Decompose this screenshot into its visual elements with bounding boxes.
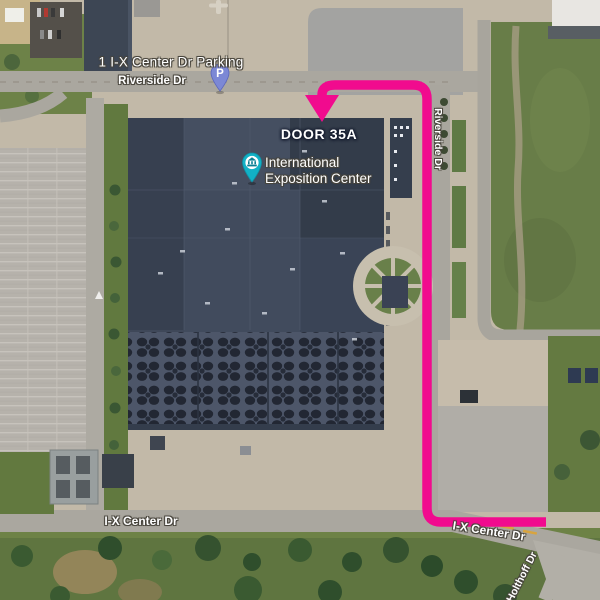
- venue-pin[interactable]: [240, 152, 264, 186]
- entrance-canopy: [382, 276, 408, 308]
- shed: [150, 436, 165, 450]
- parking-pin-glyph: P: [216, 68, 224, 80]
- dumpster: [460, 390, 478, 403]
- northeast-door-wing: [390, 118, 412, 198]
- shed-2: [240, 446, 251, 455]
- ne-curb: [548, 26, 600, 39]
- white-tent: [5, 8, 24, 22]
- circular-entrance-plaza: [353, 246, 433, 326]
- utility-building: [102, 454, 134, 488]
- small-parking-with-cars: [30, 2, 82, 58]
- satellite-imagery: [0, 0, 600, 600]
- venue-name-label[interactable]: International Exposition Center: [265, 155, 372, 188]
- parking-place-label[interactable]: 1 I-X Center Dr Parking: [99, 55, 244, 70]
- east-green-field: [491, 0, 600, 330]
- riverside-dr-east-label: Riverside Dr: [432, 108, 444, 170]
- door-35a-label: DOOR 35A: [281, 126, 357, 142]
- riverside-dr-label: Riverside Dr: [118, 75, 186, 87]
- tan-lot: [438, 340, 550, 408]
- gray-lot: [438, 406, 548, 512]
- north-small-building: [134, 0, 160, 17]
- west-parking-lot: [0, 148, 88, 460]
- ix-center-dr-west-label: I-X Center Dr: [104, 514, 177, 528]
- southeast-lots: [438, 336, 600, 512]
- satellite-map-canvas[interactable]: P 1 I-X Center Dr Parking Riverside Dr R…: [0, 0, 600, 600]
- white-building-ne: [552, 0, 600, 26]
